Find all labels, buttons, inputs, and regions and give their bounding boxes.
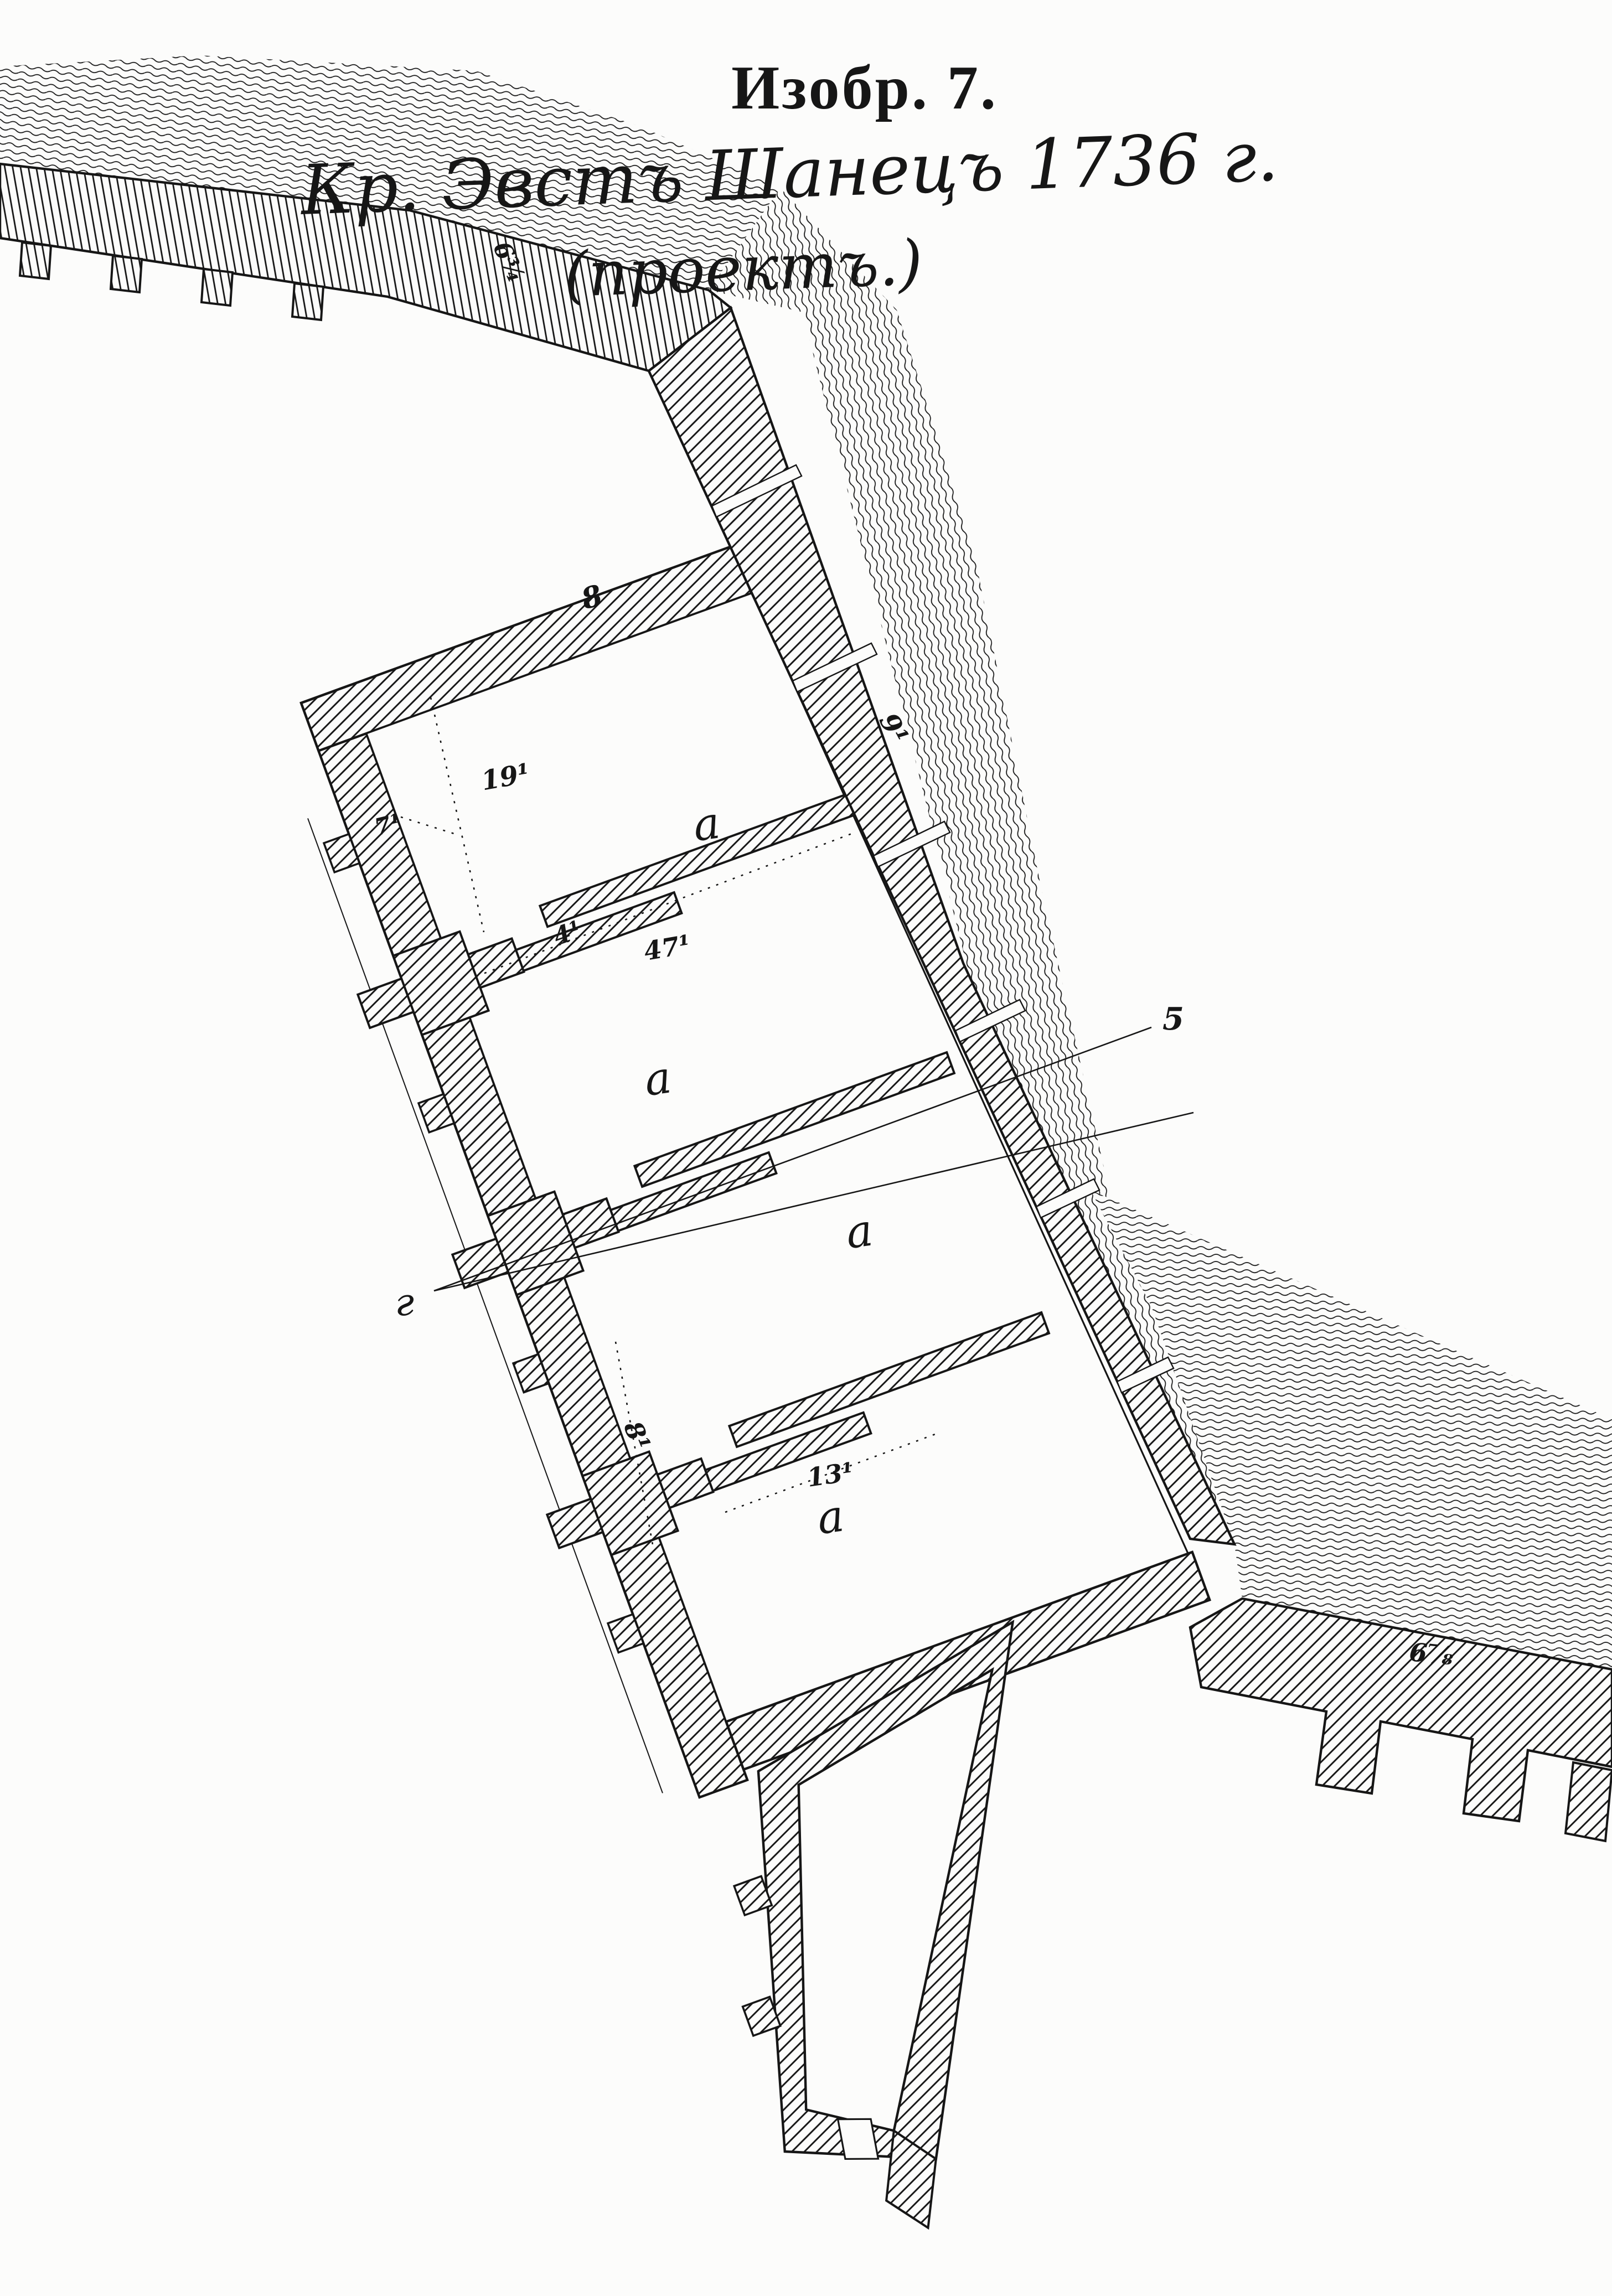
- figure-caption-line3: (проектъ.): [562, 227, 923, 312]
- section-marker-5: 5: [1162, 1001, 1184, 1037]
- rampart-tooth: [201, 269, 232, 306]
- dim-rampart-se: 6⅞: [1408, 1637, 1455, 1671]
- rampart-tooth: [20, 242, 51, 279]
- rampart-tooth: [292, 283, 323, 320]
- rampart-tooth: [111, 256, 142, 292]
- fortress-plan-figure: г 5 6¾ 8 9¹ 19¹ 7¹ 4¹ 47¹ 8¹ 13¹ 6⅞ a a …: [0, 0, 1612, 2296]
- figure-caption-line1: Изобр. 7.: [731, 54, 998, 122]
- rampart-tooth: [1565, 1762, 1612, 1841]
- engraving-page: г 5 6¾ 8 9¹ 19¹ 7¹ 4¹ 47¹ 8¹ 13¹ 6⅞ a a …: [0, 0, 1612, 2296]
- section-marker-g: г: [395, 1281, 414, 1325]
